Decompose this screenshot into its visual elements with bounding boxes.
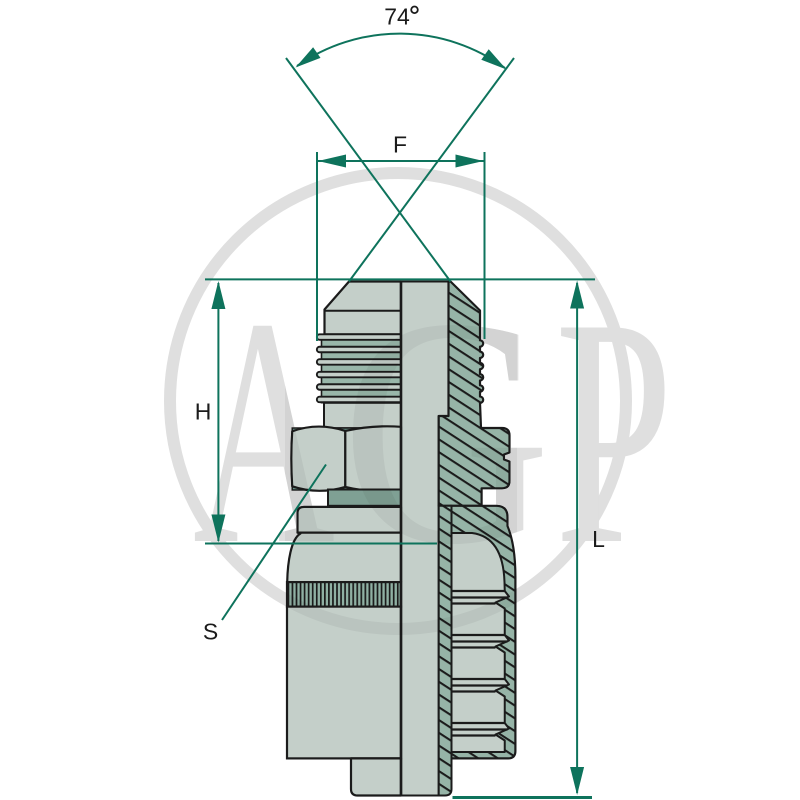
svg-text:H: H xyxy=(195,399,212,425)
svg-text:74: 74 xyxy=(384,4,410,30)
svg-text:L: L xyxy=(592,526,605,552)
svg-text:F: F xyxy=(393,132,407,158)
svg-text:S: S xyxy=(203,618,218,644)
